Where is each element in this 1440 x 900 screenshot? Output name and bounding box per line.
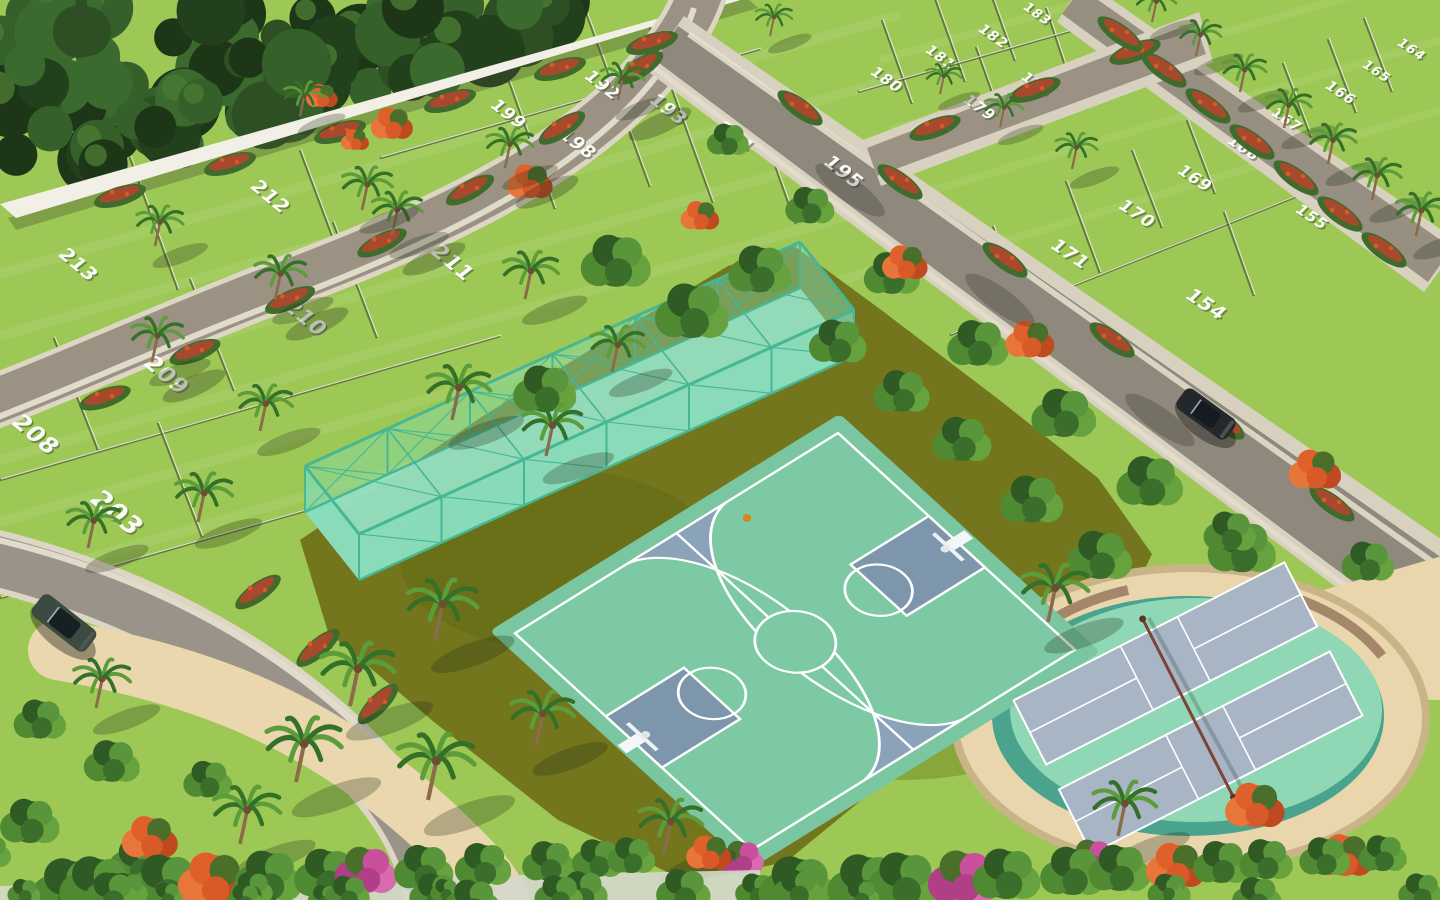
aerial-scene: 1921921931931941941951951991991981982132…: [0, 0, 1440, 900]
basketball: [743, 514, 751, 522]
site-plan-render: Aerial 3D render of a plotted land devel…: [0, 0, 1440, 900]
